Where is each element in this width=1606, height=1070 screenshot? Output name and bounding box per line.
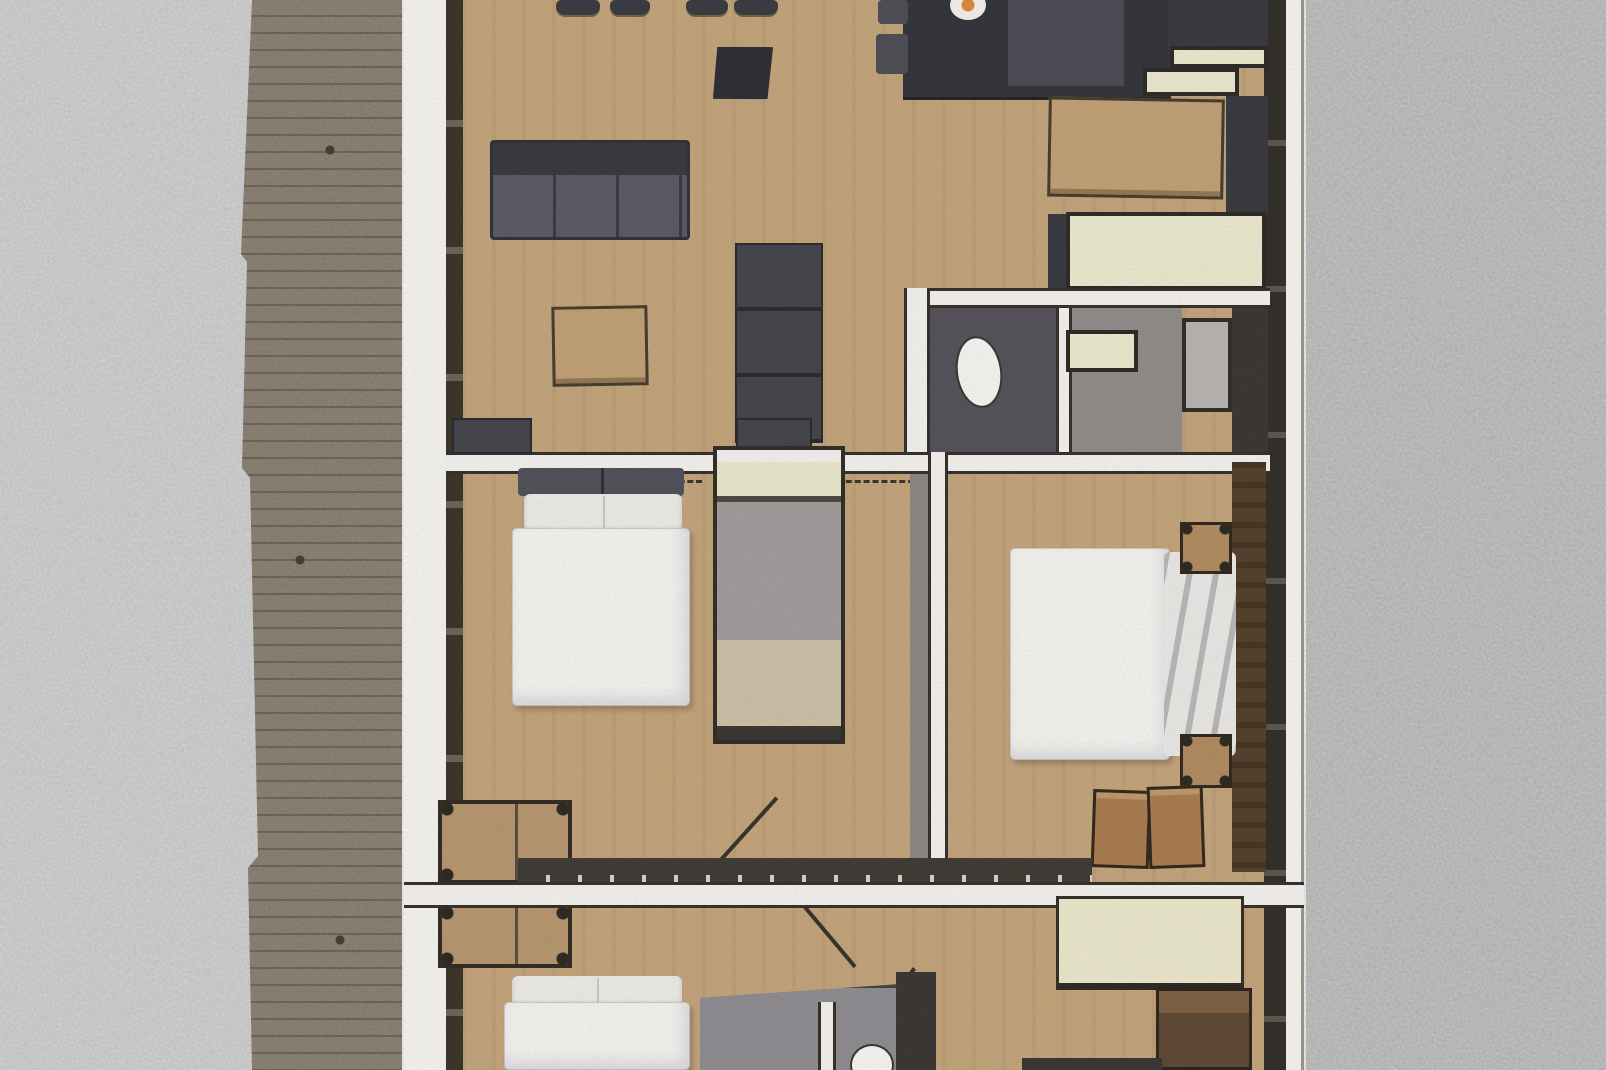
- bed2-pillows: [1164, 552, 1236, 756]
- bed1-duvet: [512, 528, 690, 706]
- feature-wall-brown: [1232, 462, 1266, 872]
- bed4-cream: [1056, 896, 1244, 990]
- kitchen-island: [903, 0, 1171, 100]
- floor-plan-sketch: [0, 0, 1606, 1070]
- dining-chair-2: [610, 0, 650, 15]
- kitchen-tall-unit: [1168, 0, 1268, 50]
- bathroom-top-wall: [928, 288, 1270, 308]
- bar-stool-2: [876, 34, 908, 74]
- kitchen-counter-2: [1143, 68, 1239, 96]
- sofa: [490, 140, 690, 240]
- bathroom-right-dark: [1232, 306, 1268, 466]
- bed1-pillows: [524, 494, 682, 532]
- bedroom2-wall-poche: [910, 474, 930, 870]
- door-leaf-bedroom3: [803, 906, 856, 968]
- bookshelf-unit: [735, 243, 823, 443]
- counter-edge-dark: [1048, 214, 1066, 290]
- plan-items-layer: [0, 0, 1606, 1070]
- side-stool: [711, 45, 775, 101]
- credenza-1: [452, 418, 532, 454]
- bathroom2-wall-white: [818, 1002, 836, 1070]
- dining-chair-3: [686, 0, 728, 15]
- wall-glazed-dark: [518, 858, 1092, 884]
- bench-box-2: [1147, 785, 1206, 869]
- vanity-sink: [1066, 330, 1138, 372]
- bed2-duvet: [1010, 548, 1170, 760]
- wardrobe-right: [1156, 988, 1252, 1070]
- pantry-unit: [1226, 96, 1268, 214]
- door-leaf-bedroom1: [714, 796, 779, 867]
- closet-laundry-room: [713, 446, 845, 744]
- bathroom2-right-wall: [896, 972, 936, 1070]
- bathroom-left-wall: [904, 288, 930, 464]
- bar-stool-1: [878, 0, 908, 24]
- nightstand-1: [1180, 522, 1232, 574]
- dining-table: [1047, 96, 1225, 199]
- bed1-headboard-cushions: [518, 468, 684, 496]
- dining-chair-4: [734, 0, 778, 15]
- bed3-duvet: [504, 1002, 690, 1070]
- kitchen-counter-big: [1066, 212, 1266, 290]
- nightstand-2: [1180, 734, 1232, 788]
- furniture-dark-strip: [1022, 1058, 1162, 1070]
- coffee-table: [551, 305, 648, 387]
- dining-chair-1: [556, 0, 600, 15]
- kitchen-counter-1: [1170, 46, 1268, 68]
- wardrobe-left-lower: [438, 904, 572, 968]
- bedroom2-left-wall: [928, 452, 948, 872]
- shower: [1182, 318, 1232, 412]
- bench-box-1: [1091, 789, 1152, 869]
